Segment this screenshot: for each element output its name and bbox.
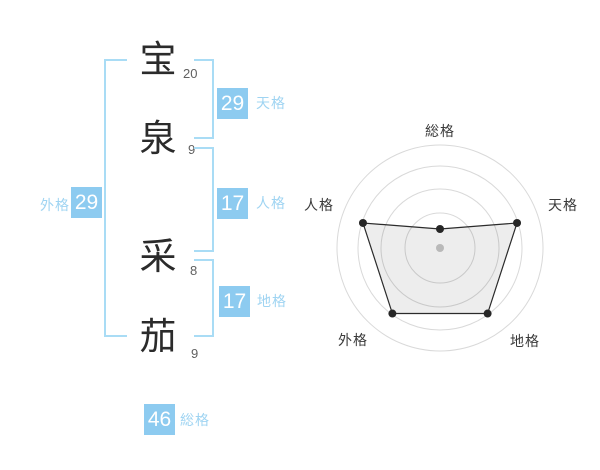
- radar-axis-label: 総格: [425, 123, 455, 139]
- name-char-4: 茄: [139, 318, 177, 356]
- radar-axis-label: 外格: [338, 332, 368, 348]
- name-char-2: 泉: [139, 120, 177, 158]
- soukaku-label: 総格: [180, 413, 210, 428]
- chikaku-label: 地格: [257, 294, 287, 309]
- radar-data-point: [513, 219, 521, 227]
- jinkaku-label: 人格: [256, 196, 286, 211]
- gaikaku-badge: 29: [71, 187, 102, 218]
- name-char-3: 采: [139, 238, 177, 276]
- jinkaku-value: 17: [221, 193, 244, 214]
- radar-data-point: [359, 219, 367, 227]
- chikaku-bracket: [194, 259, 214, 337]
- gaikaku-label: 外格: [40, 198, 70, 213]
- radar-data-point: [436, 225, 444, 233]
- tenkaku-label: 天格: [256, 96, 286, 111]
- name-char-1: 宝: [139, 41, 177, 79]
- radar-data-point: [484, 310, 492, 318]
- tenkaku-badge: 29: [217, 88, 248, 119]
- chikaku-badge: 17: [219, 286, 250, 317]
- stroke-count-4: 9: [191, 347, 198, 360]
- radar-chart: 総格天格地格外格人格: [300, 110, 590, 380]
- radar-data-polygon: [363, 223, 517, 314]
- jinkaku-badge: 17: [217, 188, 248, 219]
- tenkaku-bracket: [194, 59, 214, 139]
- gaikaku-bracket: [104, 59, 127, 337]
- radar-axis-label: 地格: [510, 333, 540, 349]
- gaikaku-value: 29: [75, 192, 98, 213]
- chikaku-value: 17: [223, 291, 246, 312]
- jinkaku-bracket: [194, 147, 214, 252]
- radar-axis-label: 天格: [548, 197, 578, 213]
- radar-axis-label: 人格: [304, 197, 334, 213]
- radar-data-point: [388, 310, 396, 318]
- name-analysis-panel: 宝 泉 采 茄 20 9 8 9 29 天格 17 人格 17 地格 外格 29…: [0, 0, 600, 470]
- soukaku-value: 46: [148, 409, 171, 430]
- tenkaku-value: 29: [221, 93, 244, 114]
- soukaku-badge: 46: [144, 404, 175, 435]
